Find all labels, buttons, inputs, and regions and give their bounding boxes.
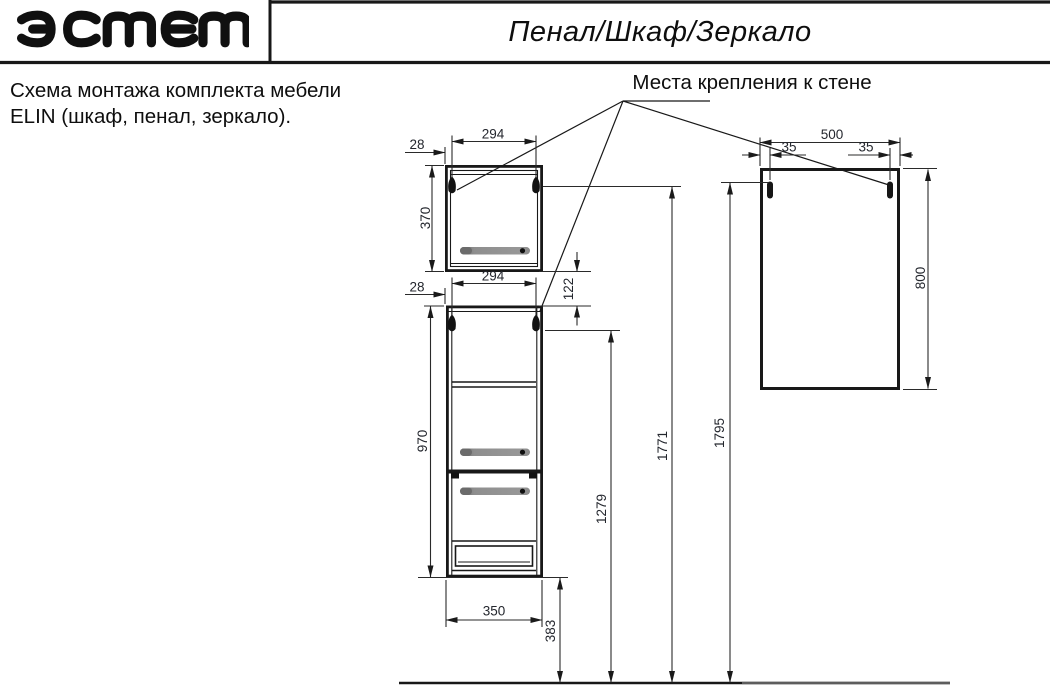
mirror-mount-slot xyxy=(767,182,773,199)
technical-drawing: 294 28 370 294 28 122 970 350 383 1279 1… xyxy=(0,0,1050,688)
top-cabinet-drawing xyxy=(446,166,541,270)
dim-tall-cabinet-width: 350 xyxy=(483,604,506,619)
dim-mirror-width: 500 xyxy=(821,127,844,142)
dim-top-cabinet-mount-span: 294 xyxy=(482,127,505,142)
open-niche xyxy=(452,541,536,571)
dim-tall-cabinet-edge-offset: 28 xyxy=(409,280,424,295)
dimension-labels: 294 28 370 294 28 122 970 350 383 1279 1… xyxy=(409,127,928,643)
dim-tall-cabinet-height: 970 xyxy=(415,430,430,453)
dimension-lines xyxy=(405,142,928,683)
mount-bracket-icon xyxy=(532,177,540,194)
dim-floor-to-tall-cabinet-bottom: 383 xyxy=(543,620,558,643)
dim-gap-between-cabinets: 122 xyxy=(561,278,576,301)
dim-mirror-height: 800 xyxy=(913,267,928,290)
dim-floor-to-top-cabinet-mount: 1771 xyxy=(655,431,670,461)
header-rules xyxy=(0,0,1050,63)
dim-tall-cabinet-mount-span: 294 xyxy=(482,269,505,284)
tall-cabinet-drawing xyxy=(447,307,542,576)
mount-bracket-icon xyxy=(448,177,456,194)
dim-top-cabinet-height: 370 xyxy=(418,207,433,230)
dim-floor-to-mirror-mount: 1795 xyxy=(712,418,727,448)
dim-top-cabinet-edge-offset: 28 xyxy=(409,137,424,152)
dim-mirror-offset-right: 35 xyxy=(858,140,873,155)
mounting-scheme-page: Пенал/Шкаф/Зеркало Схема монтажа комплек… xyxy=(0,0,1050,688)
dim-mirror-offset-left: 35 xyxy=(781,140,796,155)
mount-bracket-icon xyxy=(532,315,540,332)
mirror-drawing xyxy=(762,170,899,389)
dim-floor-to-tall-cabinet-mount: 1279 xyxy=(594,494,609,524)
mirror-mount-slot xyxy=(887,182,893,199)
mount-bracket-icon xyxy=(448,315,456,332)
